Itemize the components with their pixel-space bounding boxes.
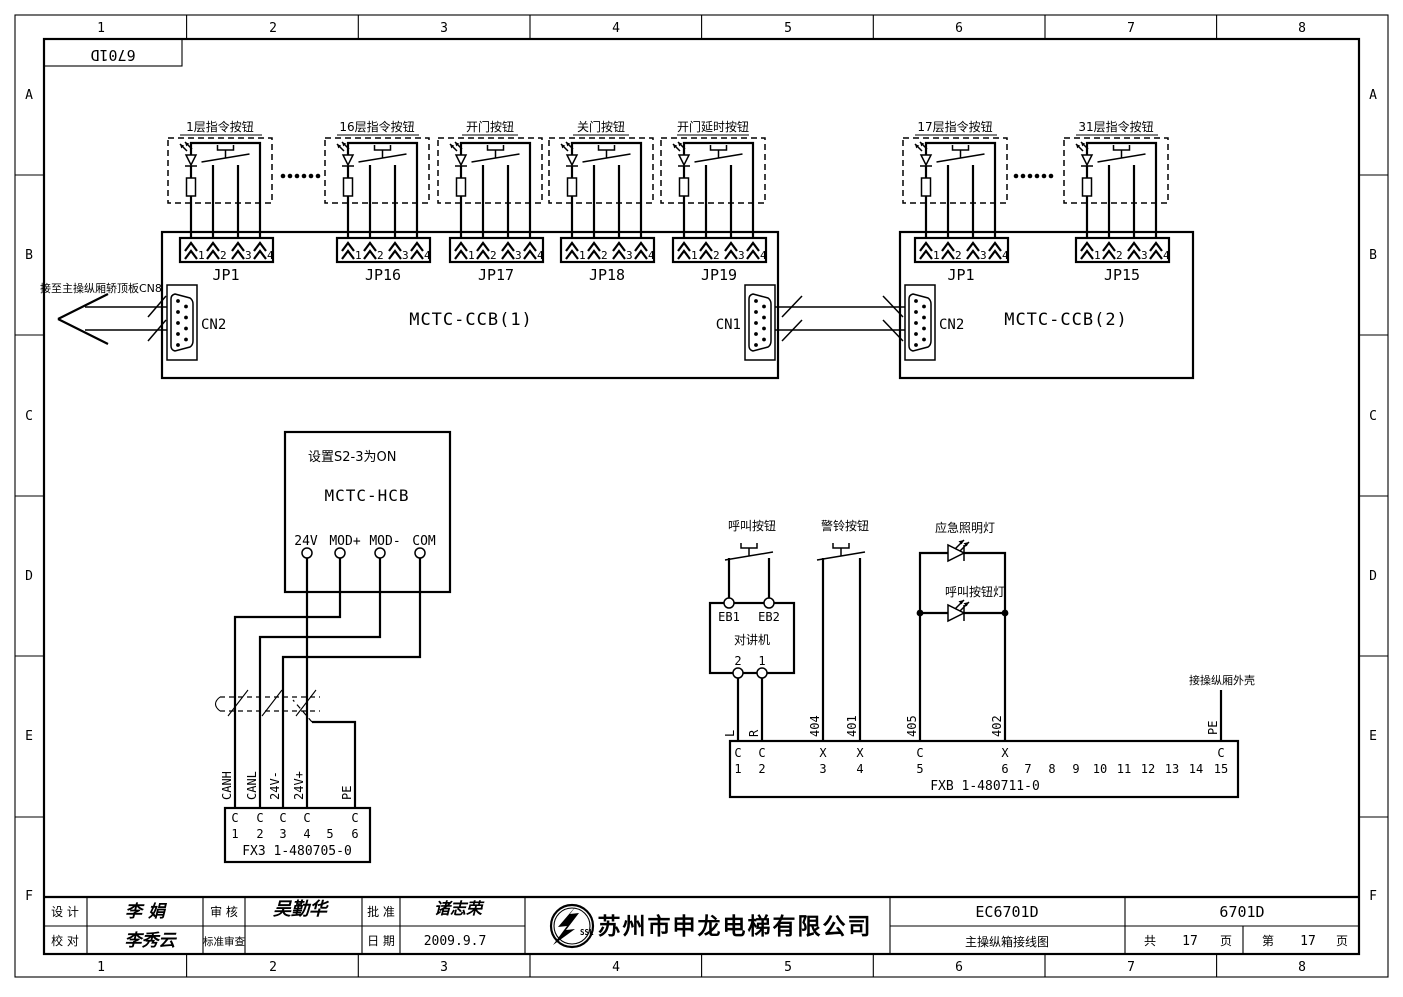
svg-text:2: 2 xyxy=(955,249,962,262)
svg-text:C: C xyxy=(351,811,358,825)
total-pages: 17 xyxy=(1182,934,1198,949)
svg-text:X: X xyxy=(819,746,827,760)
svg-text:D: D xyxy=(25,569,33,584)
svg-text:MOD-: MOD- xyxy=(369,534,400,549)
svg-text:X: X xyxy=(1001,746,1009,760)
svg-text:12: 12 xyxy=(1141,762,1155,776)
doc-title: 主操纵箱接线图 xyxy=(965,934,1049,949)
svg-text:401: 401 xyxy=(845,715,859,737)
svg-text:11: 11 xyxy=(1117,762,1131,776)
check-label: 校 对 xyxy=(51,933,79,948)
svg-text:8: 8 xyxy=(1298,960,1306,975)
svg-text:5: 5 xyxy=(916,762,923,776)
svg-text:8: 8 xyxy=(1048,762,1055,776)
svg-text:4: 4 xyxy=(1163,249,1170,262)
svg-text:F: F xyxy=(25,889,33,904)
board-name: MCTC-CCB(2) xyxy=(1004,310,1128,330)
svg-text:5: 5 xyxy=(326,827,333,841)
svg-text:E: E xyxy=(1369,729,1377,744)
svg-text:4: 4 xyxy=(267,249,274,262)
svg-text:404: 404 xyxy=(808,715,822,737)
svg-text:3: 3 xyxy=(738,249,745,262)
svg-text:共: 共 xyxy=(1144,934,1156,948)
svg-text:10: 10 xyxy=(1093,762,1107,776)
svg-text:24V-: 24V- xyxy=(268,771,282,800)
svg-text:7: 7 xyxy=(1127,21,1135,36)
check-signature: 李秀云 xyxy=(125,931,178,951)
svg-text:关门按钮: 关门按钮 xyxy=(577,119,625,134)
cn1-label: CN1 xyxy=(716,317,741,333)
svg-text:6: 6 xyxy=(955,960,963,975)
svg-text:14: 14 xyxy=(1189,762,1203,776)
svg-text:2: 2 xyxy=(734,654,741,668)
svg-text:C: C xyxy=(279,811,286,825)
svg-text:3: 3 xyxy=(1141,249,1148,262)
dip-note: 设置S2-3为ON xyxy=(308,450,396,465)
svg-text:C: C xyxy=(758,746,765,760)
svg-text:2: 2 xyxy=(1116,249,1123,262)
jp-label: JP1 xyxy=(212,266,239,284)
svg-text:3: 3 xyxy=(980,249,987,262)
svg-text:1: 1 xyxy=(198,249,205,262)
svg-text:4: 4 xyxy=(760,249,767,262)
svg-text:4: 4 xyxy=(612,960,620,975)
call-lamp-label: 呼叫按钮灯 xyxy=(945,584,1005,599)
svg-text:页: 页 xyxy=(1336,934,1348,948)
drawing-number: 6701D xyxy=(1219,903,1264,921)
svg-text:JP18: JP18 xyxy=(589,266,625,284)
svg-text:4: 4 xyxy=(648,249,655,262)
fx3-title: FX3 1-480705-0 xyxy=(242,844,352,859)
svg-text:1: 1 xyxy=(1094,249,1101,262)
svg-text:1: 1 xyxy=(579,249,586,262)
svg-text:13: 13 xyxy=(1165,762,1179,776)
logo-text: SSL xyxy=(580,928,594,937)
svg-text:16层指令按钮: 16层指令按钮 xyxy=(339,119,414,134)
svg-text:L: L xyxy=(723,730,737,737)
svg-text:JP16: JP16 xyxy=(365,266,401,284)
svg-text:6: 6 xyxy=(1001,762,1008,776)
page-number: 17 xyxy=(1300,934,1316,949)
svg-text:1: 1 xyxy=(933,249,940,262)
svg-text:MOD+: MOD+ xyxy=(329,534,360,549)
svg-text:2: 2 xyxy=(713,249,720,262)
svg-text:2: 2 xyxy=(377,249,384,262)
svg-text:C: C xyxy=(25,409,33,424)
svg-text:EB1: EB1 xyxy=(718,610,740,624)
svg-text:31层指令按钮: 31层指令按钮 xyxy=(1078,119,1153,134)
svg-text:EB2: EB2 xyxy=(758,610,780,624)
svg-text:3: 3 xyxy=(626,249,633,262)
company-name: 苏州市申龙电梯有限公司 xyxy=(598,913,873,940)
fxb-title: FXB 1-480711-0 xyxy=(930,779,1040,794)
cn2-label: CN2 xyxy=(201,317,226,333)
svg-text:JP1: JP1 xyxy=(947,266,974,284)
svg-text:24V: 24V xyxy=(294,534,318,549)
svg-text:7: 7 xyxy=(1024,762,1031,776)
svg-text:4: 4 xyxy=(612,21,620,36)
svg-text:JP15: JP15 xyxy=(1104,266,1140,284)
svg-text:A: A xyxy=(25,88,33,103)
svg-text:5: 5 xyxy=(784,960,792,975)
review-label: 审 核 xyxy=(210,904,238,919)
date-label: 日 期 xyxy=(367,934,395,948)
alarm-button-label: 警铃按钮 xyxy=(821,518,869,533)
shell-note: 接操纵厢外壳 xyxy=(1189,673,1255,687)
svg-text:2: 2 xyxy=(269,21,277,36)
call-button-label: 呼叫按钮 xyxy=(728,518,776,533)
svg-text:JP19: JP19 xyxy=(701,266,737,284)
svg-text:R: R xyxy=(747,729,761,737)
svg-text:JP17: JP17 xyxy=(478,266,514,284)
svg-text:2: 2 xyxy=(758,762,765,776)
svg-text:D: D xyxy=(1369,569,1377,584)
svg-text:开门延时按钮: 开门延时按钮 xyxy=(677,119,749,134)
emergency-lamp-label: 应急照明灯 xyxy=(935,520,995,535)
svg-text:1: 1 xyxy=(691,249,698,262)
svg-text:C: C xyxy=(734,746,741,760)
drawing-page: 12 34 56 78 12 34 56 78 AB CD EF AB CD E… xyxy=(0,0,1403,992)
svg-text:C: C xyxy=(1369,409,1377,424)
svg-text:4: 4 xyxy=(424,249,431,262)
unit-label: 1层指令按钮 xyxy=(186,119,254,134)
svg-text:4: 4 xyxy=(1002,249,1009,262)
svg-text:CANH: CANH xyxy=(220,771,234,800)
svg-text:8: 8 xyxy=(1298,21,1306,36)
svg-text:CANL: CANL xyxy=(245,771,259,800)
date-value: 2009.9.7 xyxy=(424,934,487,949)
svg-text:3: 3 xyxy=(819,762,826,776)
frame-label-rotated: 6701D xyxy=(90,46,135,64)
review-signature: 吴勤华 xyxy=(273,899,330,920)
svg-text:6: 6 xyxy=(955,21,963,36)
svg-text:405: 405 xyxy=(905,715,919,737)
svg-text:A: A xyxy=(1369,88,1377,103)
svg-text:3: 3 xyxy=(440,960,448,975)
svg-text:C: C xyxy=(1217,746,1224,760)
svg-text:2: 2 xyxy=(256,827,263,841)
svg-text:2: 2 xyxy=(490,249,497,262)
svg-text:3: 3 xyxy=(440,21,448,36)
svg-text:402: 402 xyxy=(990,715,1004,737)
svg-text:5: 5 xyxy=(784,21,792,36)
svg-text:B: B xyxy=(1369,248,1377,263)
svg-text:4: 4 xyxy=(303,827,310,841)
svg-text:1: 1 xyxy=(355,249,362,262)
svg-text:3: 3 xyxy=(402,249,409,262)
svg-text:PE: PE xyxy=(340,786,354,800)
svg-text:3: 3 xyxy=(245,249,252,262)
svg-text:3: 3 xyxy=(515,249,522,262)
svg-text:C: C xyxy=(303,811,310,825)
paper xyxy=(0,0,1403,992)
design-signature: 李 娟 xyxy=(125,902,168,922)
svg-text:7: 7 xyxy=(1127,960,1135,975)
svg-text:2: 2 xyxy=(269,960,277,975)
wiring-diagram: 12 34 56 78 12 34 56 78 AB CD EF AB CD E… xyxy=(0,0,1403,992)
svg-text:B: B xyxy=(25,248,33,263)
svg-text:开门按钮: 开门按钮 xyxy=(466,119,514,134)
svg-text:X: X xyxy=(856,746,864,760)
svg-text:17层指令按钮: 17层指令按钮 xyxy=(917,119,992,134)
svg-text:COM: COM xyxy=(412,534,436,549)
approve-label: 批 准 xyxy=(367,904,395,919)
svg-text:C: C xyxy=(916,746,923,760)
std-review-label: 标准审查 xyxy=(203,935,245,948)
cn8-note: 接至主操纵厢轿顶板CN8 xyxy=(40,281,162,295)
svg-text:9: 9 xyxy=(1072,762,1079,776)
svg-text:4: 4 xyxy=(856,762,863,776)
svg-text:4: 4 xyxy=(537,249,544,262)
doc-code: EC6701D xyxy=(975,903,1038,921)
board-name: MCTC-CCB(1) xyxy=(409,310,533,330)
svg-text:1: 1 xyxy=(734,762,741,776)
cn2-label: CN2 xyxy=(939,317,964,333)
svg-text:1: 1 xyxy=(231,827,238,841)
svg-text:C: C xyxy=(256,811,263,825)
svg-text:页: 页 xyxy=(1220,934,1232,948)
svg-text:PE: PE xyxy=(1206,721,1220,735)
svg-text:6: 6 xyxy=(351,827,358,841)
svg-text:1: 1 xyxy=(97,960,105,975)
svg-text:1: 1 xyxy=(97,21,105,36)
approve-signature: 诸志荣 xyxy=(434,899,485,918)
svg-text:1: 1 xyxy=(758,654,765,668)
board-name: MCTC-HCB xyxy=(324,486,409,505)
svg-text:1: 1 xyxy=(468,249,475,262)
svg-text:15: 15 xyxy=(1214,762,1228,776)
intercom-label: 对讲机 xyxy=(734,632,770,647)
svg-text:第: 第 xyxy=(1262,934,1274,948)
svg-text:C: C xyxy=(231,811,238,825)
svg-text:E: E xyxy=(25,729,33,744)
svg-text:2: 2 xyxy=(220,249,227,262)
svg-text:3: 3 xyxy=(279,827,286,841)
design-label: 设 计 xyxy=(51,905,79,919)
svg-text:2: 2 xyxy=(601,249,608,262)
svg-text:F: F xyxy=(1369,889,1377,904)
svg-text:24V+: 24V+ xyxy=(292,771,306,800)
